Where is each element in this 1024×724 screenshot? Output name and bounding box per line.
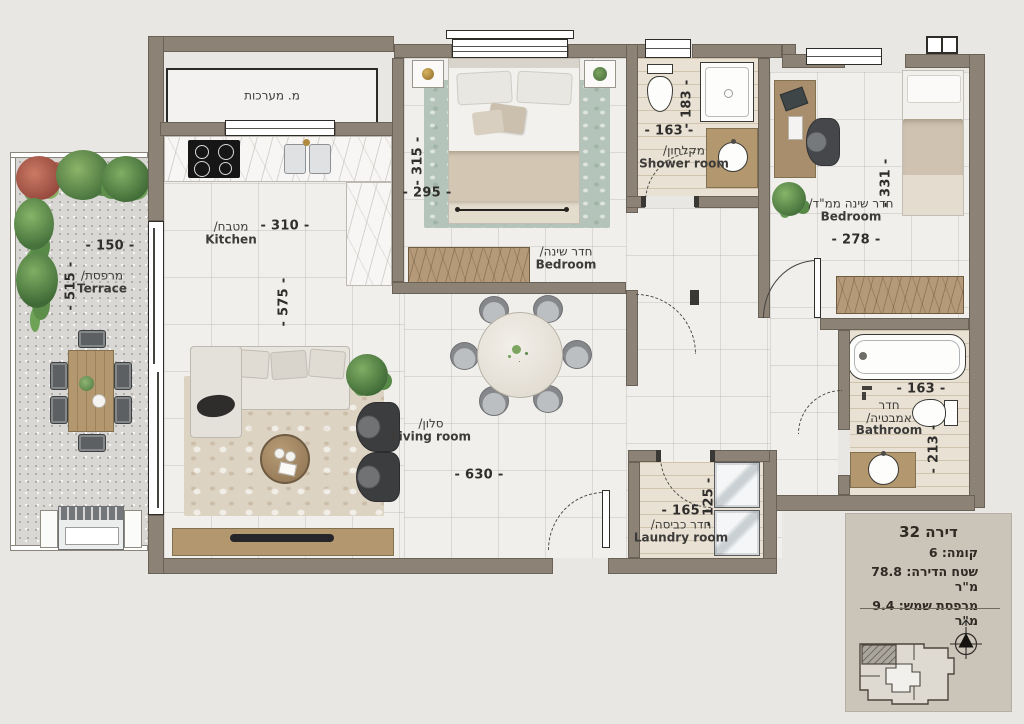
kitchen-window <box>225 120 335 136</box>
wall-segment <box>392 282 626 294</box>
terrace-chair <box>78 434 106 452</box>
tv <box>230 534 334 542</box>
kitchen-sink-left <box>284 144 306 174</box>
wall-segment <box>148 558 553 574</box>
wall-segment <box>335 122 394 136</box>
bedroom-middle-label: חדר שינה/ Bedroom <box>536 246 597 273</box>
plant-icon <box>593 67 607 81</box>
north-compass-icon <box>948 618 984 662</box>
tv-console <box>172 528 394 556</box>
dim-bedroom-middle-height: - 315 - <box>411 136 426 185</box>
door-post <box>690 290 699 305</box>
apartment-info-box: דירה 32 קומה: 6 שטח הדירה: 78.8 מ"ר מרפס… <box>845 513 1012 712</box>
ac-side-panel <box>40 510 58 548</box>
bedroom-middle-label-en: Bedroom <box>536 259 597 272</box>
dim-laundry-height: - 125 - <box>702 477 717 526</box>
door-post <box>710 450 715 462</box>
nightstand-right <box>584 60 616 88</box>
living-room-label: סלון/ Living room <box>391 418 471 445</box>
window-sill <box>446 30 574 39</box>
terrace-chair <box>50 396 68 424</box>
bedroom-middle-label-he: חדר שינה/ <box>536 246 597 259</box>
bed-measure-line <box>457 209 567 211</box>
faucet-mark <box>862 386 872 390</box>
bedroom-mamad-label-en: Bedroom <box>808 211 893 224</box>
shower-window <box>645 39 691 58</box>
washing-machine <box>714 462 760 508</box>
wall-segment <box>838 475 850 495</box>
kitchen-faucet <box>303 139 310 146</box>
wall-segment <box>969 54 985 508</box>
entrance-door-leaf <box>602 490 610 548</box>
dim-living-width: - 630 - <box>454 468 503 483</box>
dim-bathroom-width: - 163 - <box>896 382 945 397</box>
floor-line: קומה: 6 <box>846 545 1011 560</box>
plant-icon <box>346 354 388 396</box>
shower-room-label-en: Shower room <box>639 158 729 171</box>
ac-unit <box>58 506 124 550</box>
lamp-icon <box>422 68 434 80</box>
dim-bedroom-mamad-width: - 278 - <box>831 233 880 248</box>
bathroom-sink <box>868 454 899 485</box>
throw-blanket <box>195 391 237 420</box>
wardrobe-mamad <box>836 276 964 314</box>
ac-side-panel <box>124 510 142 548</box>
terrace-sliding-door <box>148 221 164 515</box>
coffee-table <box>260 434 310 484</box>
plant-icon <box>16 252 58 308</box>
dim-bedroom-mamad-height: - 331 - <box>879 158 894 207</box>
wall-segment <box>608 558 777 574</box>
wardrobe-middle-bedroom <box>408 247 530 287</box>
door-post <box>641 196 646 207</box>
balcony-line: מרפסת שמש: 9.4 מ"ר <box>846 598 1011 628</box>
desk-chair <box>806 118 840 166</box>
wall-segment <box>392 58 404 282</box>
shower-stall <box>700 62 754 122</box>
faucet-dot <box>731 139 736 144</box>
wall-segment <box>758 58 770 318</box>
mamad-shaft <box>926 36 958 54</box>
terrace-label-en: Terrace <box>77 283 127 296</box>
dim-terrace-height: - 515 - <box>64 261 79 310</box>
armchair <box>356 452 400 502</box>
dim-bedroom-middle-width: - 295 - <box>402 186 451 201</box>
sofa-chaise <box>190 346 242 438</box>
bathroom-label-en: Bathroom <box>856 424 922 437</box>
nightstand-left <box>412 60 444 88</box>
measure-dot <box>455 207 460 212</box>
kitchen-label-en: Kitchen <box>205 234 257 247</box>
wall-segment <box>692 44 782 58</box>
building-key-plan <box>856 632 956 706</box>
terrace-table <box>68 350 114 432</box>
wall-segment <box>820 318 969 330</box>
bathtub <box>848 334 966 380</box>
plant-icon <box>102 156 150 202</box>
wall-segment <box>763 450 777 574</box>
wall-segment <box>568 44 652 58</box>
dining-chair <box>562 340 592 369</box>
wall-segment <box>148 515 164 574</box>
living-room-label-he: סלון/ <box>391 418 471 431</box>
toilet-tank-shower <box>647 64 673 74</box>
double-bed <box>448 58 580 224</box>
plant-icon <box>16 156 62 200</box>
cooktop <box>188 140 240 178</box>
systems-label-text: מ. מערכות <box>244 89 300 102</box>
bedroom-middle-window <box>452 39 568 58</box>
wall-segment <box>160 122 225 136</box>
single-bed <box>902 70 964 216</box>
laundry-room-label-en: Laundry room <box>634 532 728 545</box>
dim-shower-height: - 183 - <box>680 79 695 128</box>
faucet-dot <box>881 451 886 456</box>
measure-dot <box>564 207 569 212</box>
terrace-label-he: מרפסת/ <box>77 270 127 283</box>
terrace-chair <box>114 396 132 424</box>
bathroom-label-he1: חדר <box>856 399 922 412</box>
terrace-chair <box>114 362 132 390</box>
dim-living-height: - 575 - <box>277 277 292 326</box>
door-post <box>656 450 661 462</box>
floor-plan: מ. מערכות מטבח/ Kitchen - 310 - - 575 - … <box>0 0 1024 724</box>
bathroom-label: חדר אמבטיה/ Bathroom <box>856 399 922 437</box>
plant-icon <box>772 182 806 216</box>
wall-segment <box>712 450 770 462</box>
dim-bathroom-height: - 213 - <box>927 424 942 473</box>
wall-segment <box>394 44 452 58</box>
toilet-tank-bath <box>944 400 958 426</box>
area-line: שטח הדירה: 78.8 מ"ר <box>846 564 1011 594</box>
kitchen-label-he: מטבח/ <box>205 221 257 234</box>
wall-segment <box>626 44 638 213</box>
kitchen-sink-right <box>309 144 331 174</box>
dining-table <box>477 312 563 398</box>
shower-room-label: מקלחון/ Shower room <box>639 145 729 172</box>
terrace-chair <box>50 362 68 390</box>
plant-icon <box>14 198 54 250</box>
terrace-label: מרפסת/ Terrace <box>77 270 127 297</box>
wall-segment <box>775 495 975 511</box>
wall-segment <box>148 36 394 52</box>
divider <box>860 608 1000 609</box>
shower-room-label-he: מקלחון/ <box>639 145 729 158</box>
mamad-door-leaf <box>814 258 821 318</box>
terrace-chair <box>78 330 106 348</box>
apartment-title: דירה 32 <box>846 523 1011 541</box>
bedroom-mamad-window <box>806 48 882 65</box>
living-room-label-en: Living room <box>391 431 471 444</box>
systems-label: מ. מערכות <box>244 89 300 102</box>
dining-chair <box>450 342 479 370</box>
dim-terrace-width: - 150 - <box>85 239 134 254</box>
dim-kitchen-width: - 310 - <box>260 219 309 234</box>
door-post <box>694 196 699 207</box>
kitchen-label: מטבח/ Kitchen <box>205 221 257 248</box>
kitchen-tall-cabinet <box>346 182 392 286</box>
